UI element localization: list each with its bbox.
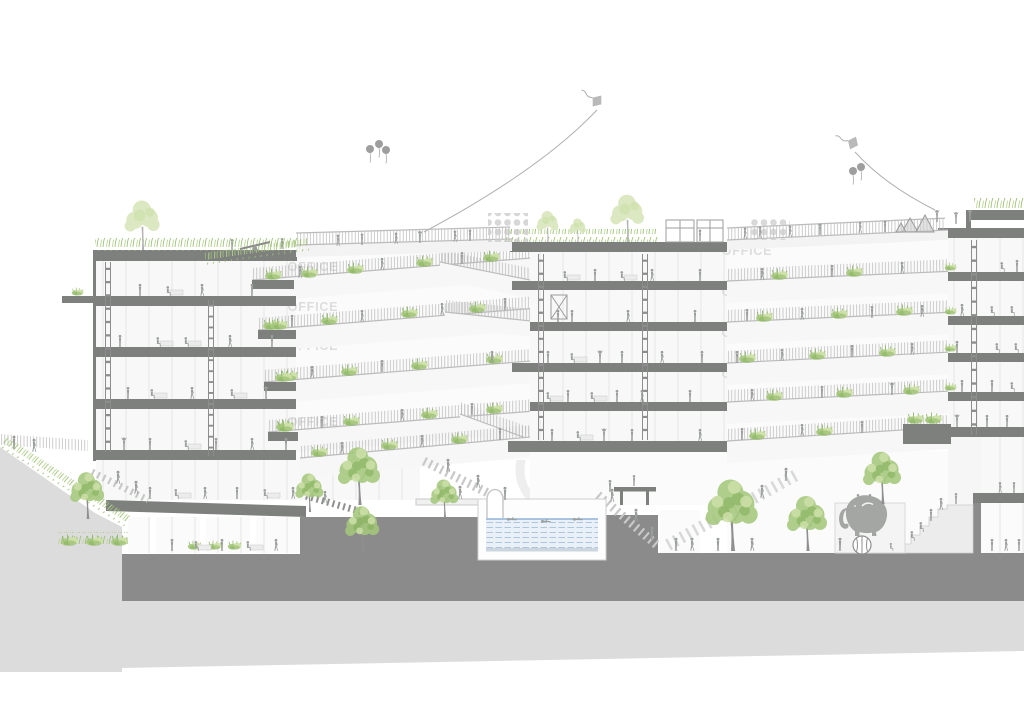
arch-doorway (487, 490, 503, 518)
section-drawing: OFFICE OFFICE OFFICE OFFICE OFFICE OFFIC… (0, 0, 1024, 724)
architectural-section-canvas: OFFICE OFFICE OFFICE OFFICE OFFICE OFFIC… (0, 0, 1024, 724)
climbing-dots-icon (488, 213, 528, 242)
swimming-pool (478, 490, 606, 560)
climbing-dots-icon (750, 219, 790, 240)
mezzanine-slab (973, 493, 1024, 503)
planter-box (903, 424, 951, 444)
